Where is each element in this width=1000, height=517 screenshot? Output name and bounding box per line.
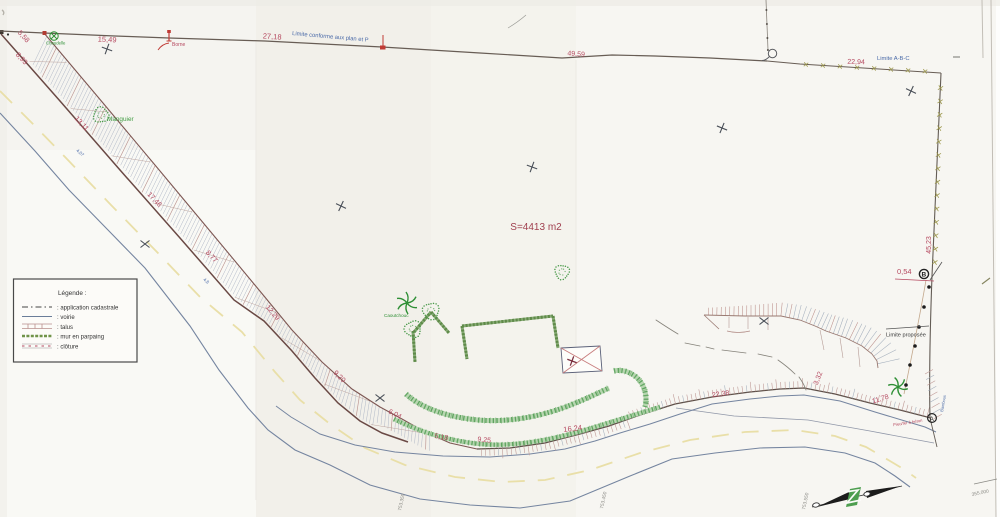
svg-text:: application cadastrale: : application cadastrale: [57, 306, 119, 312]
svg-text:Légende :: Légende :: [58, 290, 87, 297]
svg-text:S=4413 m2: S=4413 m2: [510, 222, 562, 233]
svg-text:: voirie: : voirie: [57, 315, 75, 321]
svg-text:9,25: 9,25: [477, 436, 491, 444]
svg-text:27,18: 27,18: [262, 31, 281, 41]
svg-text:Limite proposée: Limite proposée: [886, 333, 926, 339]
svg-text:45,23: 45,23: [926, 236, 933, 254]
svg-text:: mur en parpaing: : mur en parpaing: [57, 335, 104, 341]
svg-text:15,49: 15,49: [98, 35, 117, 45]
svg-text:49,59: 49,59: [567, 50, 585, 58]
svg-text:Limite A-B-C: Limite A-B-C: [877, 56, 910, 62]
svg-text:Chaudelle: Chaudelle: [46, 41, 66, 46]
svg-text:A: A: [930, 416, 935, 423]
svg-text:22,94: 22,94: [847, 59, 865, 67]
svg-text:Caoutchouc: Caoutchouc: [384, 313, 409, 318]
svg-text:Borne: Borne: [172, 42, 186, 48]
svg-text:Manguier: Manguier: [107, 116, 135, 123]
svg-text:: clôture: : clôture: [57, 345, 79, 351]
svg-text:: talus: : talus: [57, 325, 73, 331]
svg-text:0,54: 0,54: [897, 267, 912, 276]
svg-text:B: B: [922, 272, 927, 279]
